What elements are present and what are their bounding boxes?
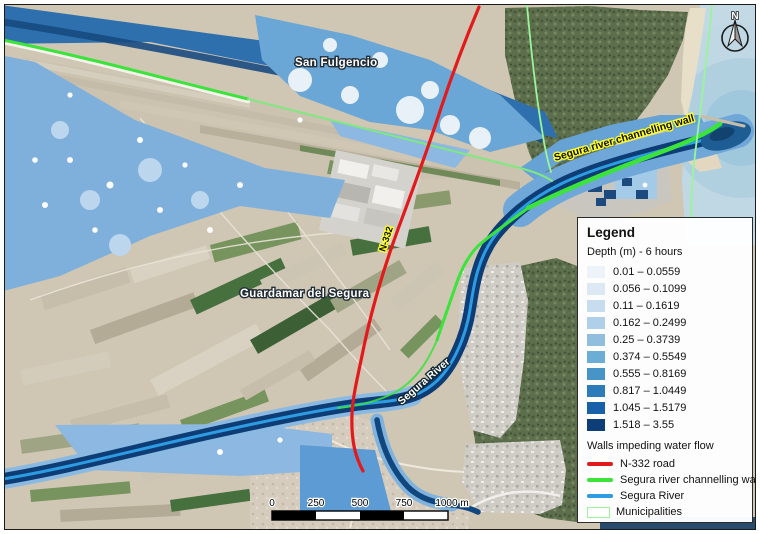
depth-swatch: [587, 419, 605, 431]
depth-swatch: [587, 300, 605, 312]
legend-line-item: N-332 road: [587, 456, 743, 472]
scale-tick: 0: [269, 498, 275, 509]
legend-title: Legend: [587, 224, 743, 241]
depth-swatch: [587, 334, 605, 346]
legend-depth-class: 1.045 – 1.5179: [587, 399, 743, 416]
legend-depth-class: 0.25 – 0.3739: [587, 331, 743, 348]
depth-swatch: [587, 351, 605, 363]
label-guardamar: Guardamar del Segura: [240, 288, 370, 300]
depth-swatch: [587, 385, 605, 397]
legend-walls-heading: Walls impeding water flow: [587, 439, 743, 453]
legend-municipalities-item: Municipalities: [587, 504, 743, 520]
legend-depth-class: 0.817 – 1.0449: [587, 382, 743, 399]
flood-map-page: San Fulgencio Guardamar del Segura N-332…: [0, 0, 760, 534]
depth-swatch: [587, 317, 605, 329]
legend-depth-class: 0.01 – 0.0559: [587, 263, 743, 280]
scale-tick: 500: [352, 498, 369, 509]
river-line-swatch: [587, 494, 613, 498]
legend-line-item: Segura river channelling wall: [587, 472, 743, 488]
legend-depth-heading: Depth (m) - 6 hours: [587, 245, 743, 259]
depth-swatch: [587, 402, 605, 414]
municipality-swatch: [587, 507, 610, 518]
legend-depth-class: 0.555 – 0.8169: [587, 365, 743, 382]
legend-depth-class: 0.11 – 0.1619: [587, 297, 743, 314]
legend-depth-class: 0.056 – 0.1099: [587, 280, 743, 297]
legend-line-item: Segura River: [587, 488, 743, 504]
legend-depth-class: 1.518 – 3.55: [587, 416, 743, 433]
scale-tick: 750: [396, 498, 413, 509]
depth-swatch: [587, 266, 605, 278]
map-frame: San Fulgencio Guardamar del Segura N-332…: [4, 4, 756, 530]
wall-line-swatch: [587, 478, 613, 482]
legend-depth-class: 0.162 – 0.2499: [587, 314, 743, 331]
legend-panel: Legend Depth (m) - 6 hours 0.01 – 0.0559…: [577, 217, 753, 523]
scale-tick: 1000 m: [435, 498, 468, 509]
road-line-swatch: [587, 462, 613, 466]
label-san-fulgencio: San Fulgencio: [295, 57, 378, 69]
scale-tick: 250: [308, 498, 325, 509]
legend-depth-class: 0.374 – 0.5549: [587, 348, 743, 365]
depth-swatch: [587, 283, 605, 295]
depth-swatch: [587, 368, 605, 380]
